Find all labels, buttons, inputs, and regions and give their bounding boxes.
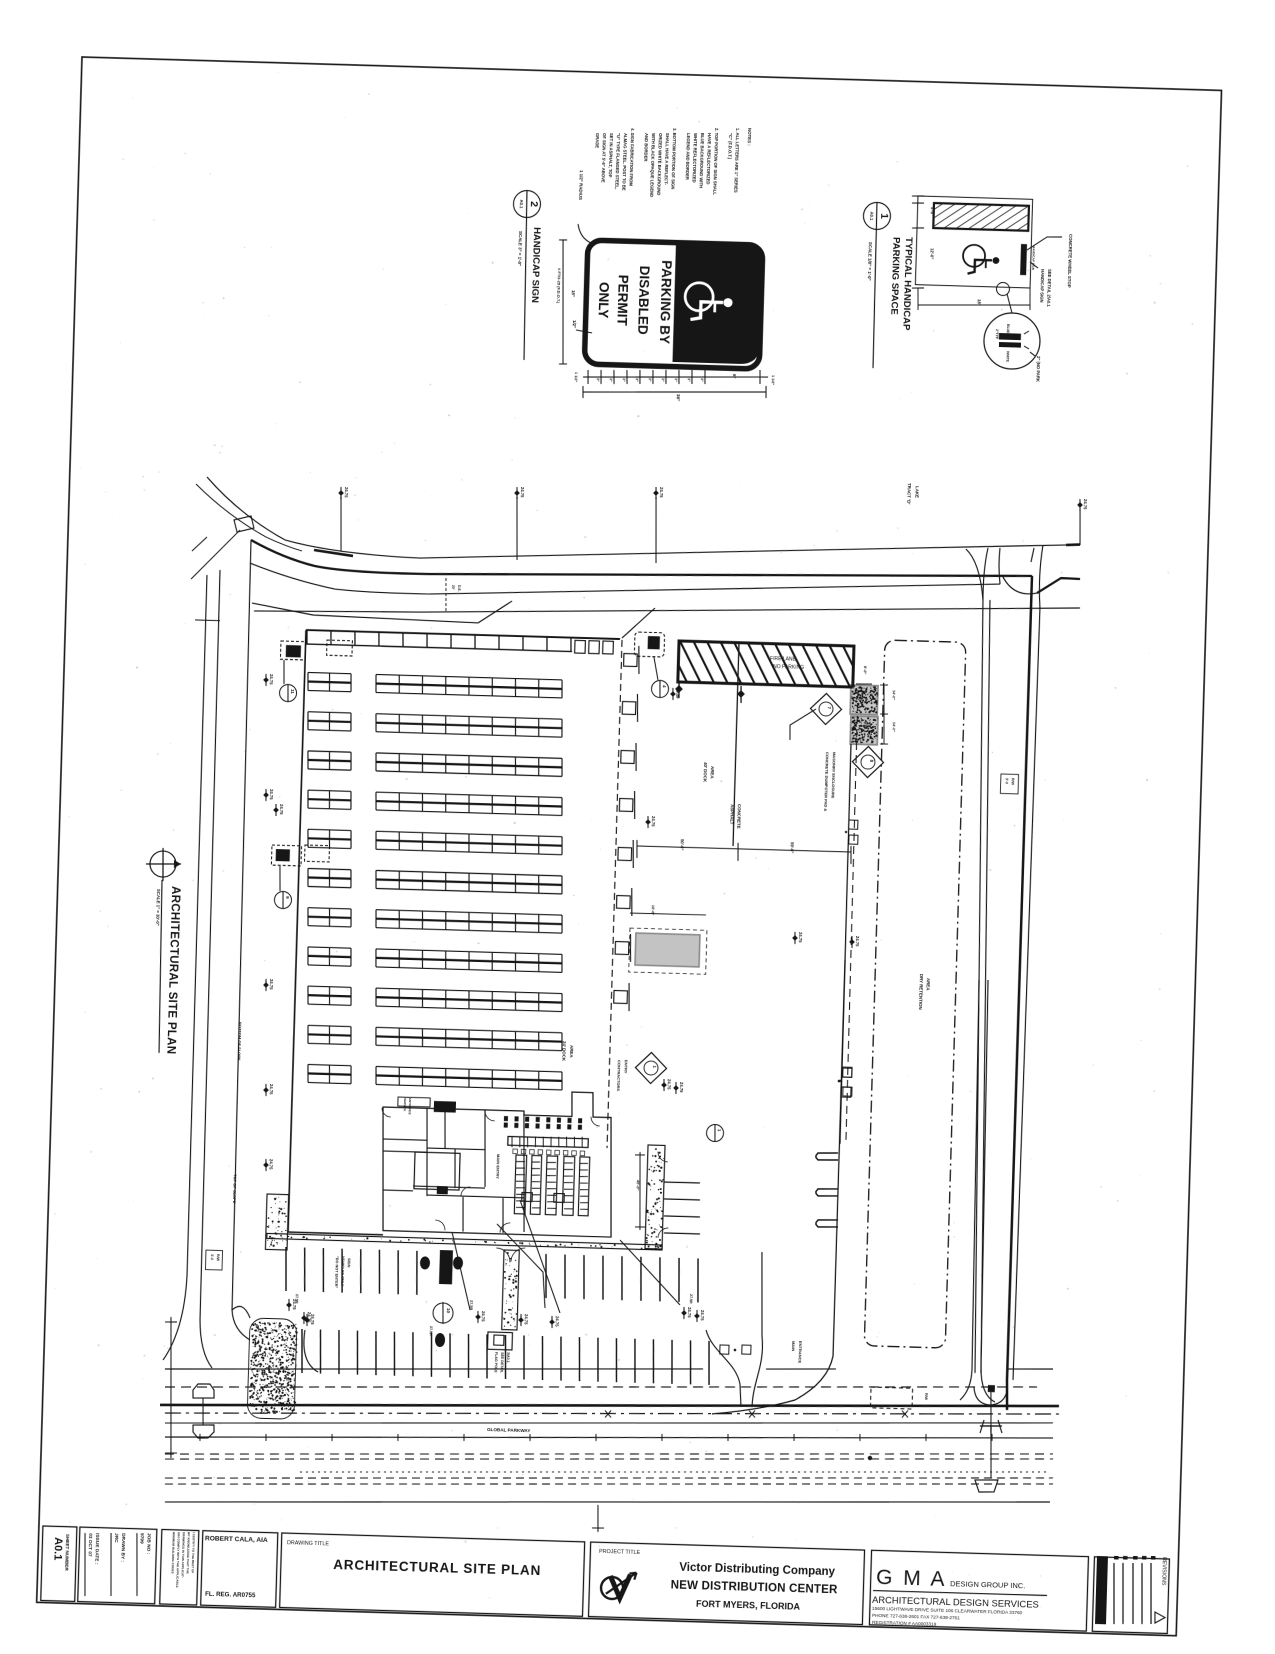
svg-text:24.75: 24.75	[679, 1082, 684, 1093]
svg-text:BLUE: BLUE	[1006, 324, 1010, 334]
svg-text:10'-0": 10'-0"	[651, 905, 655, 916]
svg-text:6": 6"	[732, 374, 737, 378]
svg-text:1 1/2": 1 1/2"	[771, 375, 775, 386]
svg-text:24.75: 24.75	[667, 1079, 672, 1090]
svg-text:R/W: R/W	[924, 1393, 928, 1401]
svg-text:JRC: JRC	[113, 1533, 119, 1543]
svg-text:3": 3"	[661, 378, 665, 382]
svg-text:24.75: 24.75	[269, 674, 274, 685]
svg-text:18': 18'	[977, 299, 982, 305]
svg-text:DRY RETENTION: DRY RETENTION	[918, 974, 924, 1010]
svg-text:03 OCT 07: 03 OCT 07	[86, 1533, 93, 1557]
svg-text:DRAWING TITLE: DRAWING TITLE	[287, 1540, 329, 1547]
svg-text:SCALE 3" = 1'-0": SCALE 3" = 1'-0"	[517, 231, 523, 266]
svg-text:3": 3"	[687, 378, 691, 382]
svg-text:FL. REG. AR0755: FL. REG. AR0755	[205, 1591, 256, 1599]
svg-text:40' DOCK: 40' DOCK	[702, 762, 708, 783]
svg-text:59'-0": 59'-0"	[790, 842, 795, 854]
svg-text:1: 1	[878, 213, 890, 219]
svg-text:24.75: 24.75	[524, 1314, 529, 1325]
svg-text:LAKE: LAKE	[915, 486, 920, 498]
svg-text:AND BORDER: AND BORDER	[643, 133, 649, 162]
svg-text:20': 20'	[451, 585, 455, 590]
svg-text:24.75: 24.75	[659, 487, 664, 498]
svg-text:AREA: AREA	[569, 1045, 574, 1058]
svg-text:# FTO-25 (F.D.O.T.): # FTO-25 (F.D.O.T.)	[556, 268, 562, 304]
svg-text:SIGN: SIGN	[347, 1258, 351, 1268]
svg-text:SCALE 1" = 30'-0": SCALE 1" = 30'-0"	[155, 889, 161, 926]
svg-text:9799: 9799	[139, 1533, 145, 1544]
svg-text:14'-0": 14'-0"	[892, 722, 896, 732]
svg-text:1 1/2" RADIUS: 1 1/2" RADIUS	[578, 170, 584, 200]
svg-text:3": 3"	[596, 378, 600, 382]
svg-text:R/W: R/W	[216, 1254, 220, 1262]
svg-text:3": 3"	[700, 378, 704, 382]
svg-text:PERMIT: PERMIT	[614, 274, 631, 326]
svg-text:3": 3"	[609, 378, 613, 382]
svg-text:3/A0.1: 3/A0.1	[506, 1352, 510, 1363]
svg-text:PARKING BY: PARKING BY	[657, 260, 674, 344]
svg-text:8'-0": 8'-0"	[863, 666, 867, 675]
svg-text:24.75: 24.75	[269, 1159, 274, 1170]
svg-text:CONTRACTORS: CONTRACTORS	[616, 1060, 622, 1092]
svg-text:HANDICAP SIGN: HANDICAP SIGN	[1039, 269, 1045, 303]
svg-text:24.75: 24.75	[344, 487, 349, 498]
svg-text:45'-0": 45'-0"	[636, 1180, 640, 1191]
svg-text:NO PARKING: NO PARKING	[773, 664, 804, 671]
svg-text:3": 3"	[674, 378, 678, 382]
svg-text:PROJECT TITLE: PROJECT TITLE	[599, 1549, 641, 1556]
svg-text:36": 36"	[676, 394, 681, 401]
svg-text:G M A: G M A	[876, 1566, 948, 1591]
svg-text:50'-0": 50'-0"	[680, 839, 685, 851]
svg-text:3": 3"	[622, 378, 626, 382]
svg-text:14'-0": 14'-0"	[892, 690, 896, 700]
svg-text:2: 2	[528, 201, 540, 207]
svg-text:A0.1: A0.1	[519, 200, 524, 210]
svg-text:3": 3"	[635, 378, 639, 382]
svg-text:1/2": 1/2"	[572, 320, 577, 328]
svg-text:ASPHALT: ASPHALT	[729, 804, 735, 825]
svg-text:24.75: 24.75	[269, 789, 274, 800]
svg-text:3'-0: 3'-0	[1005, 778, 1009, 784]
svg-text:24.75: 24.75	[700, 1310, 705, 1321]
svg-text:WHITE: WHITE	[1006, 351, 1010, 363]
svg-text:TRACT 'D': TRACT 'D'	[906, 483, 912, 504]
svg-text:PARKING SPACE: PARKING SPACE	[888, 237, 901, 315]
svg-text:FIRE LANE: FIRE LANE	[770, 656, 797, 663]
svg-text:12'-0": 12'-0"	[930, 248, 935, 260]
svg-text:27.5R: 27.5R	[429, 1326, 433, 1336]
svg-text:FLAG POLE: FLAG POLE	[493, 1352, 498, 1373]
svg-text:24.75: 24.75	[651, 816, 656, 827]
svg-text:3'-0: 3'-0	[210, 1254, 214, 1260]
svg-text:GRADE: GRADE	[595, 133, 600, 148]
svg-text:AREA: AREA	[926, 978, 931, 991]
svg-text:24.75: 24.75	[310, 1314, 315, 1325]
svg-text:ENTRANCE: ENTRANCE	[797, 1341, 803, 1364]
svg-text:24.75: 24.75	[687, 1307, 692, 1318]
svg-text:ISSUE DATE :: ISSUE DATE :	[93, 1533, 100, 1565]
svg-text:24.75: 24.75	[481, 1311, 486, 1322]
svg-text:AREA: AREA	[710, 766, 715, 779]
svg-text:11: 11	[290, 689, 295, 694]
svg-text:18": 18"	[571, 290, 576, 297]
svg-text:10: 10	[446, 1308, 451, 1314]
svg-text:3": 3"	[648, 378, 652, 382]
svg-text:27.5R: 27.5R	[295, 1294, 299, 1304]
svg-text:CONCRETE: CONCRETE	[736, 804, 742, 829]
svg-text:24.75: 24.75	[269, 979, 274, 990]
svg-text:ENTRANCE: ENTRANCE	[408, 1098, 412, 1115]
svg-text:5'-0": 5'-0"	[930, 207, 935, 216]
svg-text:27.5R: 27.5R	[689, 1294, 693, 1304]
svg-text:SERVICE: SERVICE	[403, 1098, 407, 1111]
svg-text:5'-0": 5'-0"	[675, 690, 679, 699]
svg-text:JOB NO :: JOB NO :	[145, 1533, 152, 1555]
svg-text:MAIN: MAIN	[791, 1341, 796, 1351]
svg-text:DRAWN BY :: DRAWN BY :	[119, 1533, 126, 1563]
svg-text:REVISIONS: REVISIONS	[1160, 1557, 1167, 1586]
svg-text:A0.1: A0.1	[51, 1537, 64, 1561]
svg-text:ENTRY: ENTRY	[624, 1060, 629, 1074]
svg-text:MAIN ENTRY: MAIN ENTRY	[495, 1154, 501, 1179]
svg-text:24.75: 24.75	[520, 487, 525, 498]
svg-text:TOP OF SLOPE: TOP OF SLOPE	[232, 1174, 238, 1204]
svg-text:24.75: 24.75	[555, 1316, 560, 1327]
svg-text:SEE DETAIL: SEE DETAIL	[499, 1352, 504, 1374]
svg-text:24.75: 24.75	[269, 1084, 274, 1095]
svg-text:1 1/2": 1 1/2"	[574, 372, 578, 383]
svg-text:HANDICAP SIGN: HANDICAP SIGN	[529, 227, 542, 303]
svg-text:24.75: 24.75	[279, 804, 284, 815]
svg-text:A0.1: A0.1	[869, 212, 874, 222]
svg-text:"C" (F.D.O.T.): "C" (F.D.O.T.)	[727, 133, 733, 160]
svg-text:D.E.: D.E.	[457, 585, 461, 592]
svg-text:24' DOCK: 24' DOCK	[561, 1041, 567, 1062]
svg-text:DISABLED: DISABLED	[635, 265, 652, 335]
svg-text:24.75: 24.75	[855, 936, 860, 947]
svg-text:24.75: 24.75	[798, 932, 803, 943]
svg-text:2" (NO PARK: 2" (NO PARK	[1035, 356, 1041, 382]
svg-text:24.75: 24.75	[1083, 499, 1088, 510]
svg-text:NOTES :: NOTES :	[746, 128, 752, 146]
svg-text:ONLY: ONLY	[595, 282, 611, 319]
svg-text:R/W: R/W	[1011, 778, 1015, 786]
svg-text:2"TYP: 2"TYP	[995, 329, 999, 340]
